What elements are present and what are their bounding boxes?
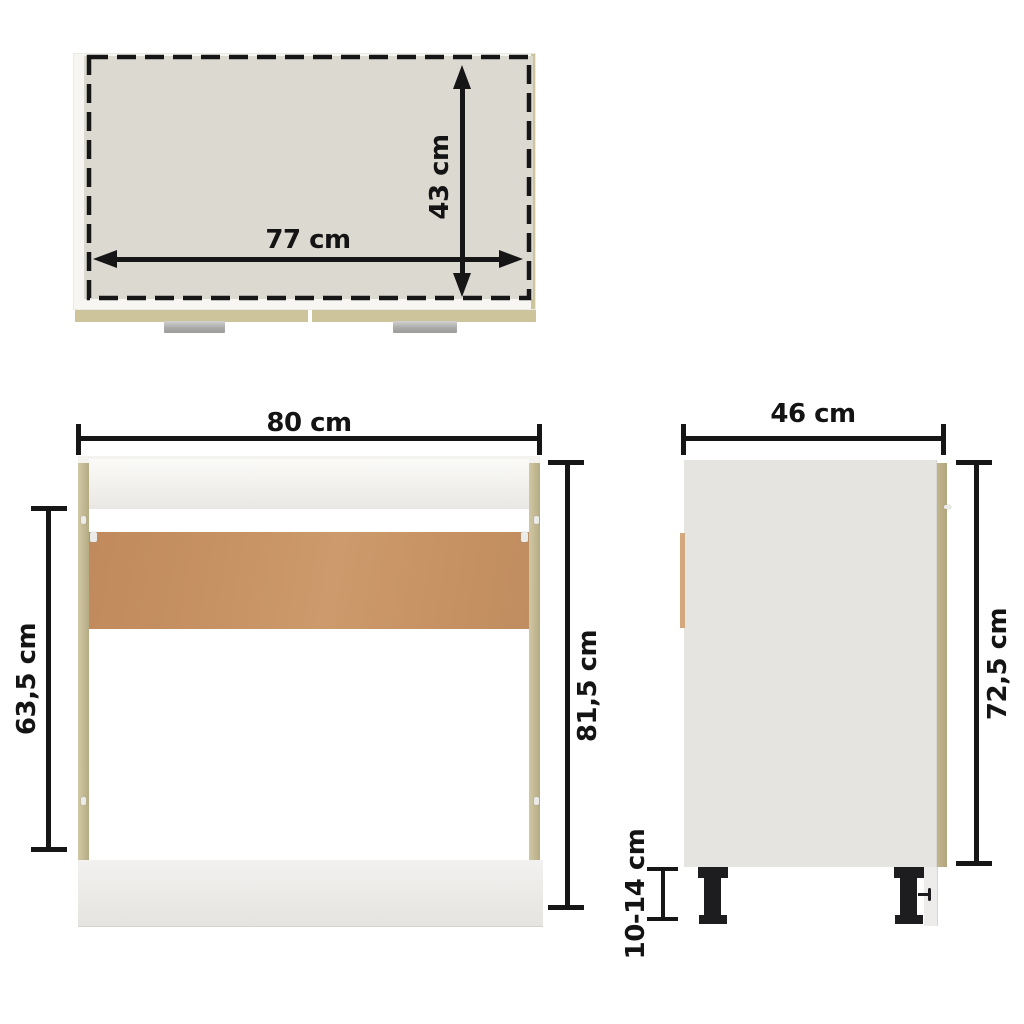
body-height-tick-bottom	[956, 861, 992, 866]
hinge-screw-top-right	[534, 516, 539, 524]
arrow-up-icon	[453, 65, 471, 89]
leg-height-tick-top	[647, 867, 678, 871]
leg-height-dimension-line	[661, 869, 665, 920]
opening-height-tick-top	[31, 506, 67, 511]
front-top-rail	[89, 459, 529, 509]
side-depth-label: 46 cm	[770, 399, 855, 429]
opening-height-dimension-line	[46, 508, 51, 850]
side-back-lower-strip	[924, 867, 938, 926]
leg-height-label: 10-14 cm	[621, 829, 651, 960]
total-height-tick-top	[548, 460, 584, 465]
side-depth-tick-left	[681, 424, 686, 455]
total-height-tick-bottom	[548, 905, 584, 910]
top-view-depth-label: 43 cm	[425, 134, 455, 219]
arrow-right-icon	[499, 250, 523, 268]
top-view-width-label: 77 cm	[265, 225, 350, 255]
leg-adjuster-knob	[928, 888, 931, 901]
hinge-screw-bottom-left	[81, 797, 86, 805]
side-back-edge	[937, 463, 947, 867]
side-depth-dimension-line	[683, 436, 944, 441]
arrow-down-icon	[453, 273, 471, 297]
leg-height-tick-bottom	[647, 917, 678, 921]
arrow-left-icon	[93, 250, 117, 268]
top-view-handle-left	[164, 321, 225, 333]
front-bottom-panel	[78, 860, 543, 927]
side-panel	[684, 460, 937, 867]
front-right-post	[529, 463, 540, 872]
cabinet-dimension-diagram: 77 cm 43 cm 80 cm 63,5 cm 81,5 cm	[0, 0, 1024, 1024]
total-height-dimension-line	[565, 462, 570, 910]
opening-height-tick-bottom	[31, 847, 67, 852]
leg-front	[698, 867, 728, 924]
front-width-tick-right	[537, 424, 542, 455]
backboard-hinge-right	[521, 532, 528, 542]
side-back-pin	[944, 505, 951, 509]
body-height-dimension-line	[974, 462, 979, 866]
opening-height-label: 63,5 cm	[12, 623, 42, 735]
top-view-depth-arrow	[452, 65, 472, 297]
front-backboard	[89, 532, 529, 629]
front-width-label: 80 cm	[266, 408, 351, 438]
side-depth-tick-right	[941, 424, 946, 455]
backboard-hinge-left	[90, 532, 97, 542]
front-left-post	[78, 463, 89, 872]
hinge-screw-bottom-right	[534, 797, 539, 805]
top-view-handle-right	[393, 321, 457, 333]
total-height-label: 81,5 cm	[573, 630, 603, 742]
hinge-screw-top-left	[81, 516, 86, 524]
side-door-edge	[680, 533, 685, 628]
body-height-tick-top	[956, 460, 992, 465]
body-height-label: 72,5 cm	[983, 608, 1013, 720]
front-width-tick-left	[76, 424, 81, 455]
